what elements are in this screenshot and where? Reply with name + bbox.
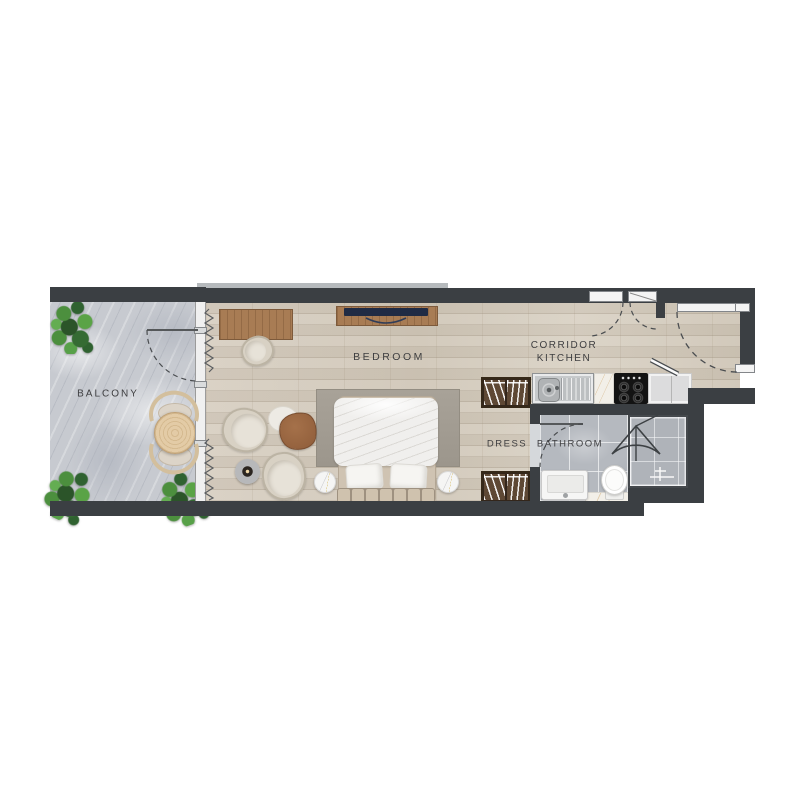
floor-plan-canvas: BALCONY BEDROOM CORRIDOR KITCHEN DRESS B… xyxy=(0,0,800,800)
door-jamb xyxy=(735,364,755,373)
wall xyxy=(206,288,755,303)
bathroom-sink-icon xyxy=(541,470,588,500)
wall xyxy=(656,303,665,318)
pillow-icon xyxy=(389,463,427,491)
faucet-icon xyxy=(563,493,568,498)
pillow-icon xyxy=(345,463,384,492)
wall xyxy=(530,404,540,424)
wall xyxy=(50,287,196,302)
wall xyxy=(740,288,755,372)
window-jamb xyxy=(194,327,207,334)
wall xyxy=(196,501,644,516)
kitchen-sink-icon xyxy=(532,373,594,404)
bedroom-label: BEDROOM xyxy=(353,351,425,363)
corridor-kitchen-label: CORRIDOR KITCHEN xyxy=(531,339,597,365)
window-jamb xyxy=(194,381,207,388)
candle-table-icon xyxy=(235,459,260,484)
toilet-icon xyxy=(601,465,628,495)
corridor-label-line: CORRIDOR xyxy=(531,339,597,352)
wall xyxy=(195,287,206,302)
plant-icon xyxy=(50,300,96,354)
door-lintel xyxy=(677,303,737,312)
stove-icon xyxy=(614,373,648,404)
entry-door-leaf xyxy=(628,291,657,302)
entry-door-leaf xyxy=(589,291,623,302)
window-jamb xyxy=(194,440,207,447)
window-wall-icon xyxy=(195,287,206,516)
wall xyxy=(530,467,540,503)
door-jamb xyxy=(735,303,750,312)
wall xyxy=(195,501,206,516)
wardrobe-icon xyxy=(481,377,531,408)
wall xyxy=(530,404,692,415)
balcony-label: BALCONY xyxy=(77,389,139,400)
faucet-icon xyxy=(555,386,559,390)
bathroom-label: BATHROOM xyxy=(537,439,603,450)
shower-icon xyxy=(628,415,688,488)
wall xyxy=(50,501,196,516)
nightstand-icon xyxy=(437,471,459,493)
counter-marble-section xyxy=(594,373,614,404)
counter-section xyxy=(648,373,692,404)
tv-icon xyxy=(344,308,428,316)
kitchen-label-line: KITCHEN xyxy=(531,352,597,365)
wardrobe-icon xyxy=(481,471,531,503)
nightstand-icon xyxy=(314,471,336,493)
dining-table-icon xyxy=(154,412,196,454)
dress-label: DRESS xyxy=(487,439,527,450)
bed-duvet xyxy=(334,398,438,466)
